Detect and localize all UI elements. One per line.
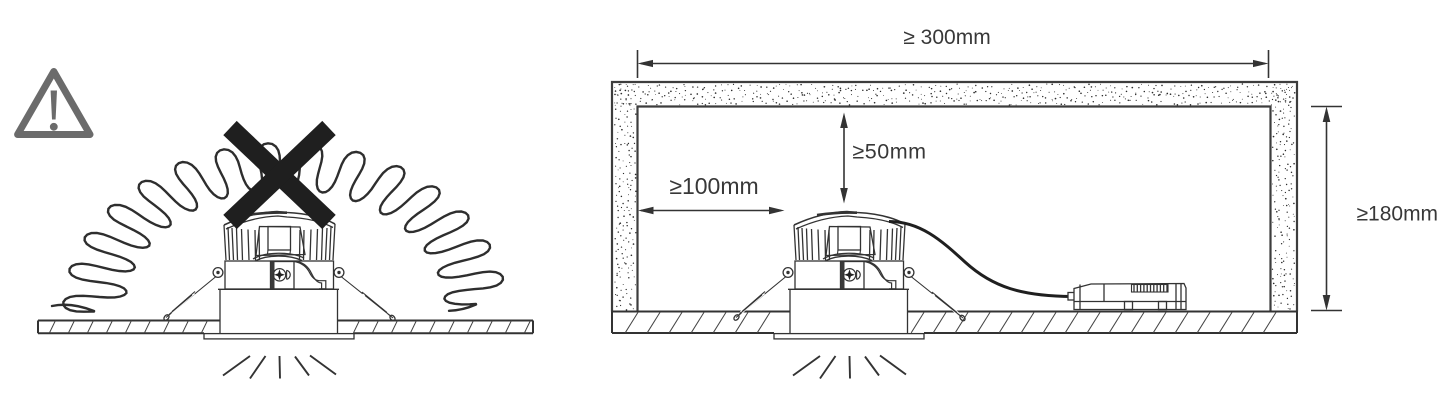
svg-text:≥100mm: ≥100mm xyxy=(669,173,758,199)
svg-text:≥ 300mm: ≥ 300mm xyxy=(903,26,990,49)
svg-text:≥180mm: ≥180mm xyxy=(1357,203,1439,226)
svg-text:≥50mm: ≥50mm xyxy=(853,140,927,164)
